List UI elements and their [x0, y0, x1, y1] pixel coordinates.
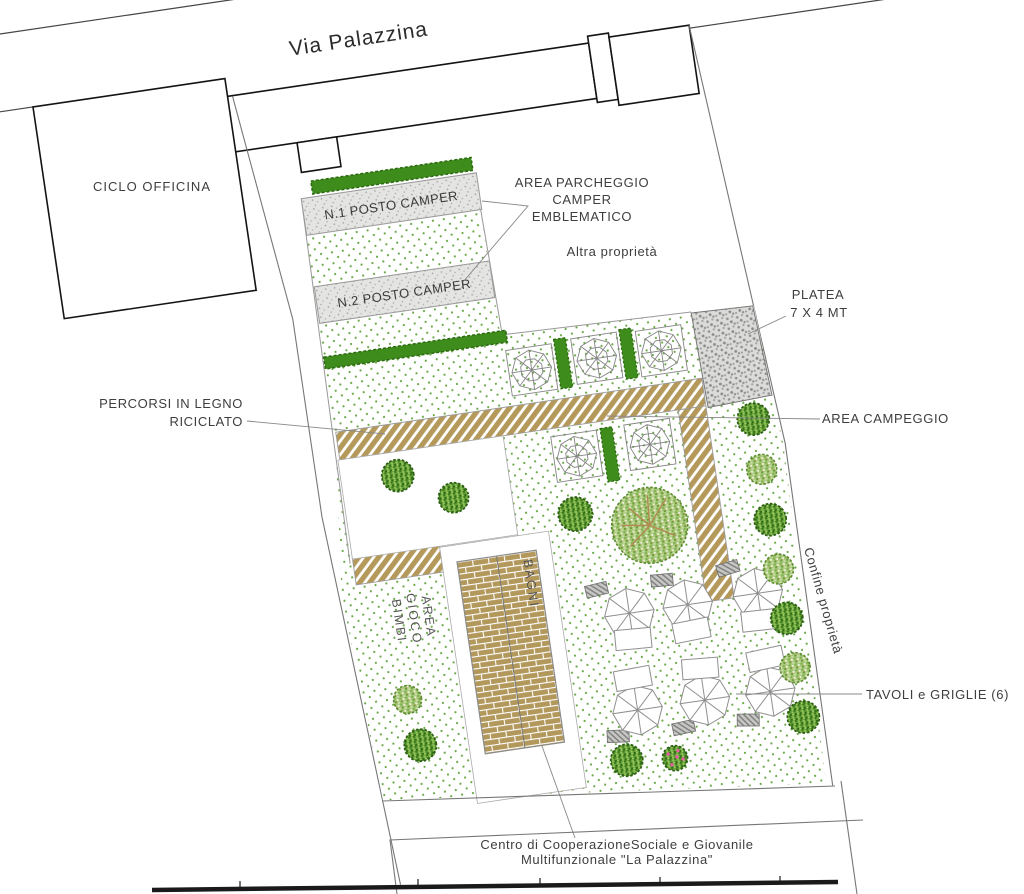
street-name-label: Via Palazzina: [288, 18, 430, 61]
building-notch: [297, 137, 341, 173]
centro-line2: Multifunzionale "La Palazzina": [521, 852, 713, 867]
parcheggio-line3: EMBLEMATICO: [532, 209, 632, 224]
building-la-palazzina-facade: [152, 876, 838, 890]
percorsi-line2: RICICLATO: [169, 414, 243, 429]
table-1: [614, 627, 652, 650]
building-ciclo-officina: [33, 79, 256, 319]
site-plan-page: Via Palazzina N.1 POSTO CAMPER N.2 POSTO…: [0, 0, 1024, 894]
plan-rotated-frame: Via Palazzina N.1 POSTO CAMPER N.2 POSTO…: [0, 0, 1024, 894]
parcheggio-line2: CAMPER: [552, 192, 611, 207]
grill-2: [650, 573, 673, 587]
platea-line2: 7 X 4 MT: [790, 305, 848, 320]
parcheggio-line1: AREA PARCHEGGIO: [515, 175, 649, 190]
ciclo-officina-label: CICLO OFFICINA: [93, 179, 211, 194]
centro-line1: Centro di CooperazioneSociale e Giovanil…: [480, 837, 753, 852]
grill-4: [607, 730, 629, 743]
grill-6: [737, 714, 759, 726]
table-5: [681, 657, 718, 680]
percorsi-line1: PERCORSI IN LEGNO: [99, 396, 243, 411]
platea-line1: PLATEA: [792, 287, 845, 302]
altra-proprieta-label: Altra proprietà: [567, 244, 658, 259]
building-top-right: [609, 25, 699, 105]
tavoli-griglie-label: TAVOLI e GRIGLIE (6): [866, 687, 1009, 702]
area-campeggio-label: AREA CAMPEGGIO: [822, 411, 949, 426]
site-plan-drawing: Via Palazzina N.1 POSTO CAMPER N.2 POSTO…: [0, 0, 1024, 894]
